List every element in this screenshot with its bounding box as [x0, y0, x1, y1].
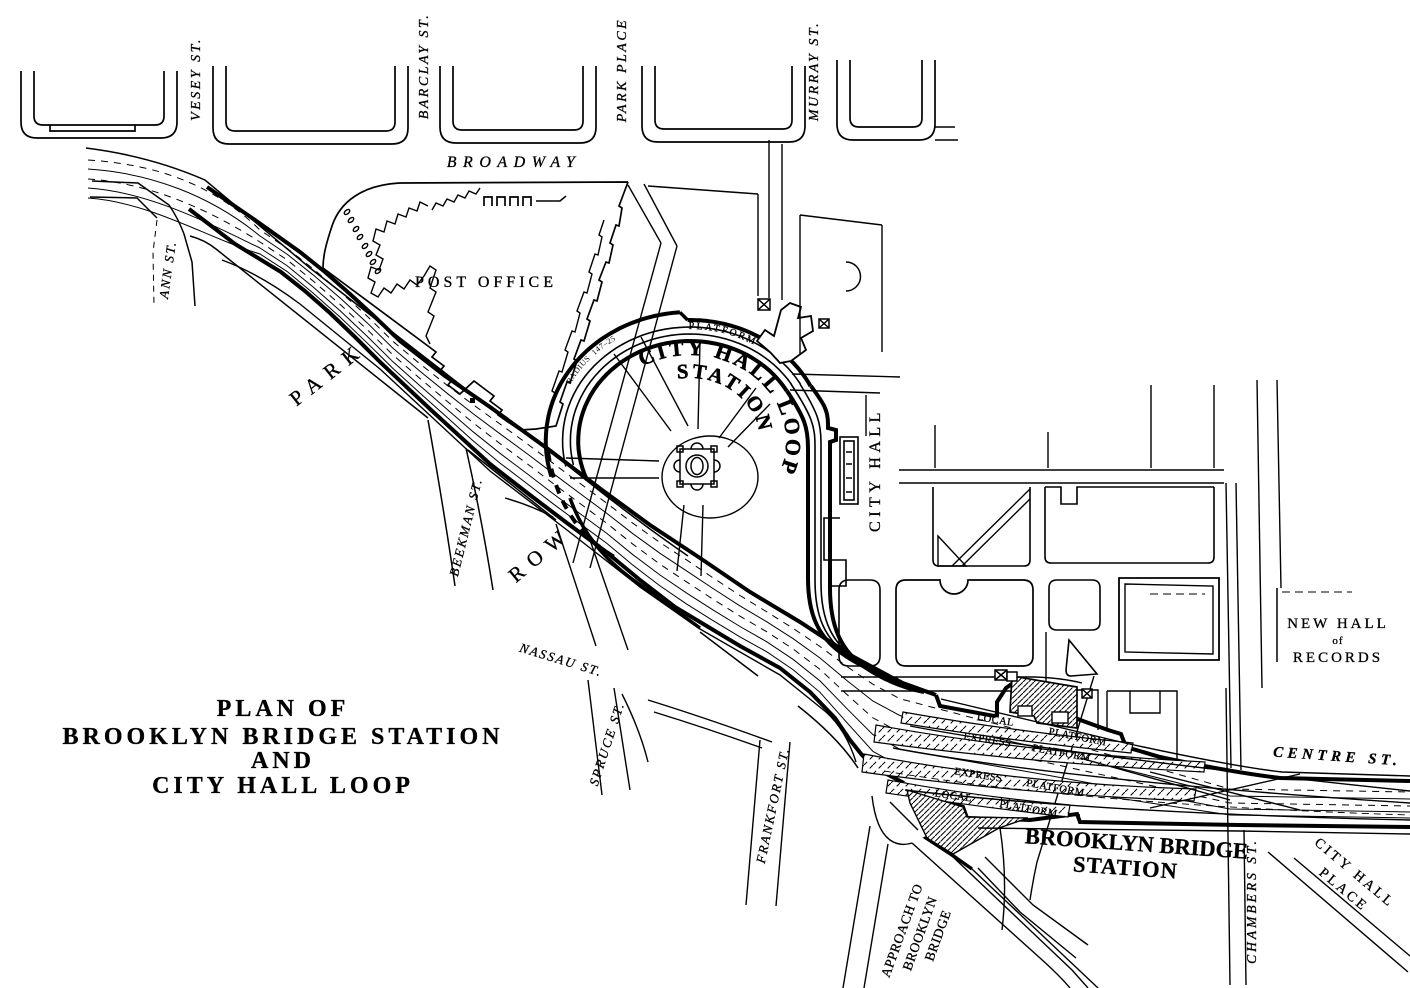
- svg-text:VESEY ST.: VESEY ST.: [189, 37, 204, 121]
- svg-text:NEW HALL: NEW HALL: [1287, 616, 1389, 632]
- svg-text:BROADWAY: BROADWAY: [447, 154, 581, 171]
- svg-text:CITY HALL: CITY HALL: [867, 408, 884, 532]
- svg-text:PARK PLACE: PARK PLACE: [615, 18, 630, 123]
- svg-text:AND: AND: [251, 748, 315, 774]
- svg-text:of: of: [1332, 635, 1343, 647]
- svg-text:BROOKLYN BRIDGE STATION: BROOKLYN BRIDGE STATION: [63, 724, 504, 750]
- svg-text:MURRAY ST.: MURRAY ST.: [807, 21, 822, 122]
- svg-text:BARCLAY ST.: BARCLAY ST.: [417, 13, 432, 120]
- svg-text:CHAMBERS ST.: CHAMBERS ST.: [1244, 838, 1259, 964]
- svg-text:RECORDS: RECORDS: [1293, 650, 1383, 666]
- svg-text:CITY HALL LOOP: CITY HALL LOOP: [152, 773, 414, 799]
- svg-text:PLAN OF: PLAN OF: [217, 696, 350, 722]
- svg-text:POST OFFICE: POST OFFICE: [415, 274, 557, 291]
